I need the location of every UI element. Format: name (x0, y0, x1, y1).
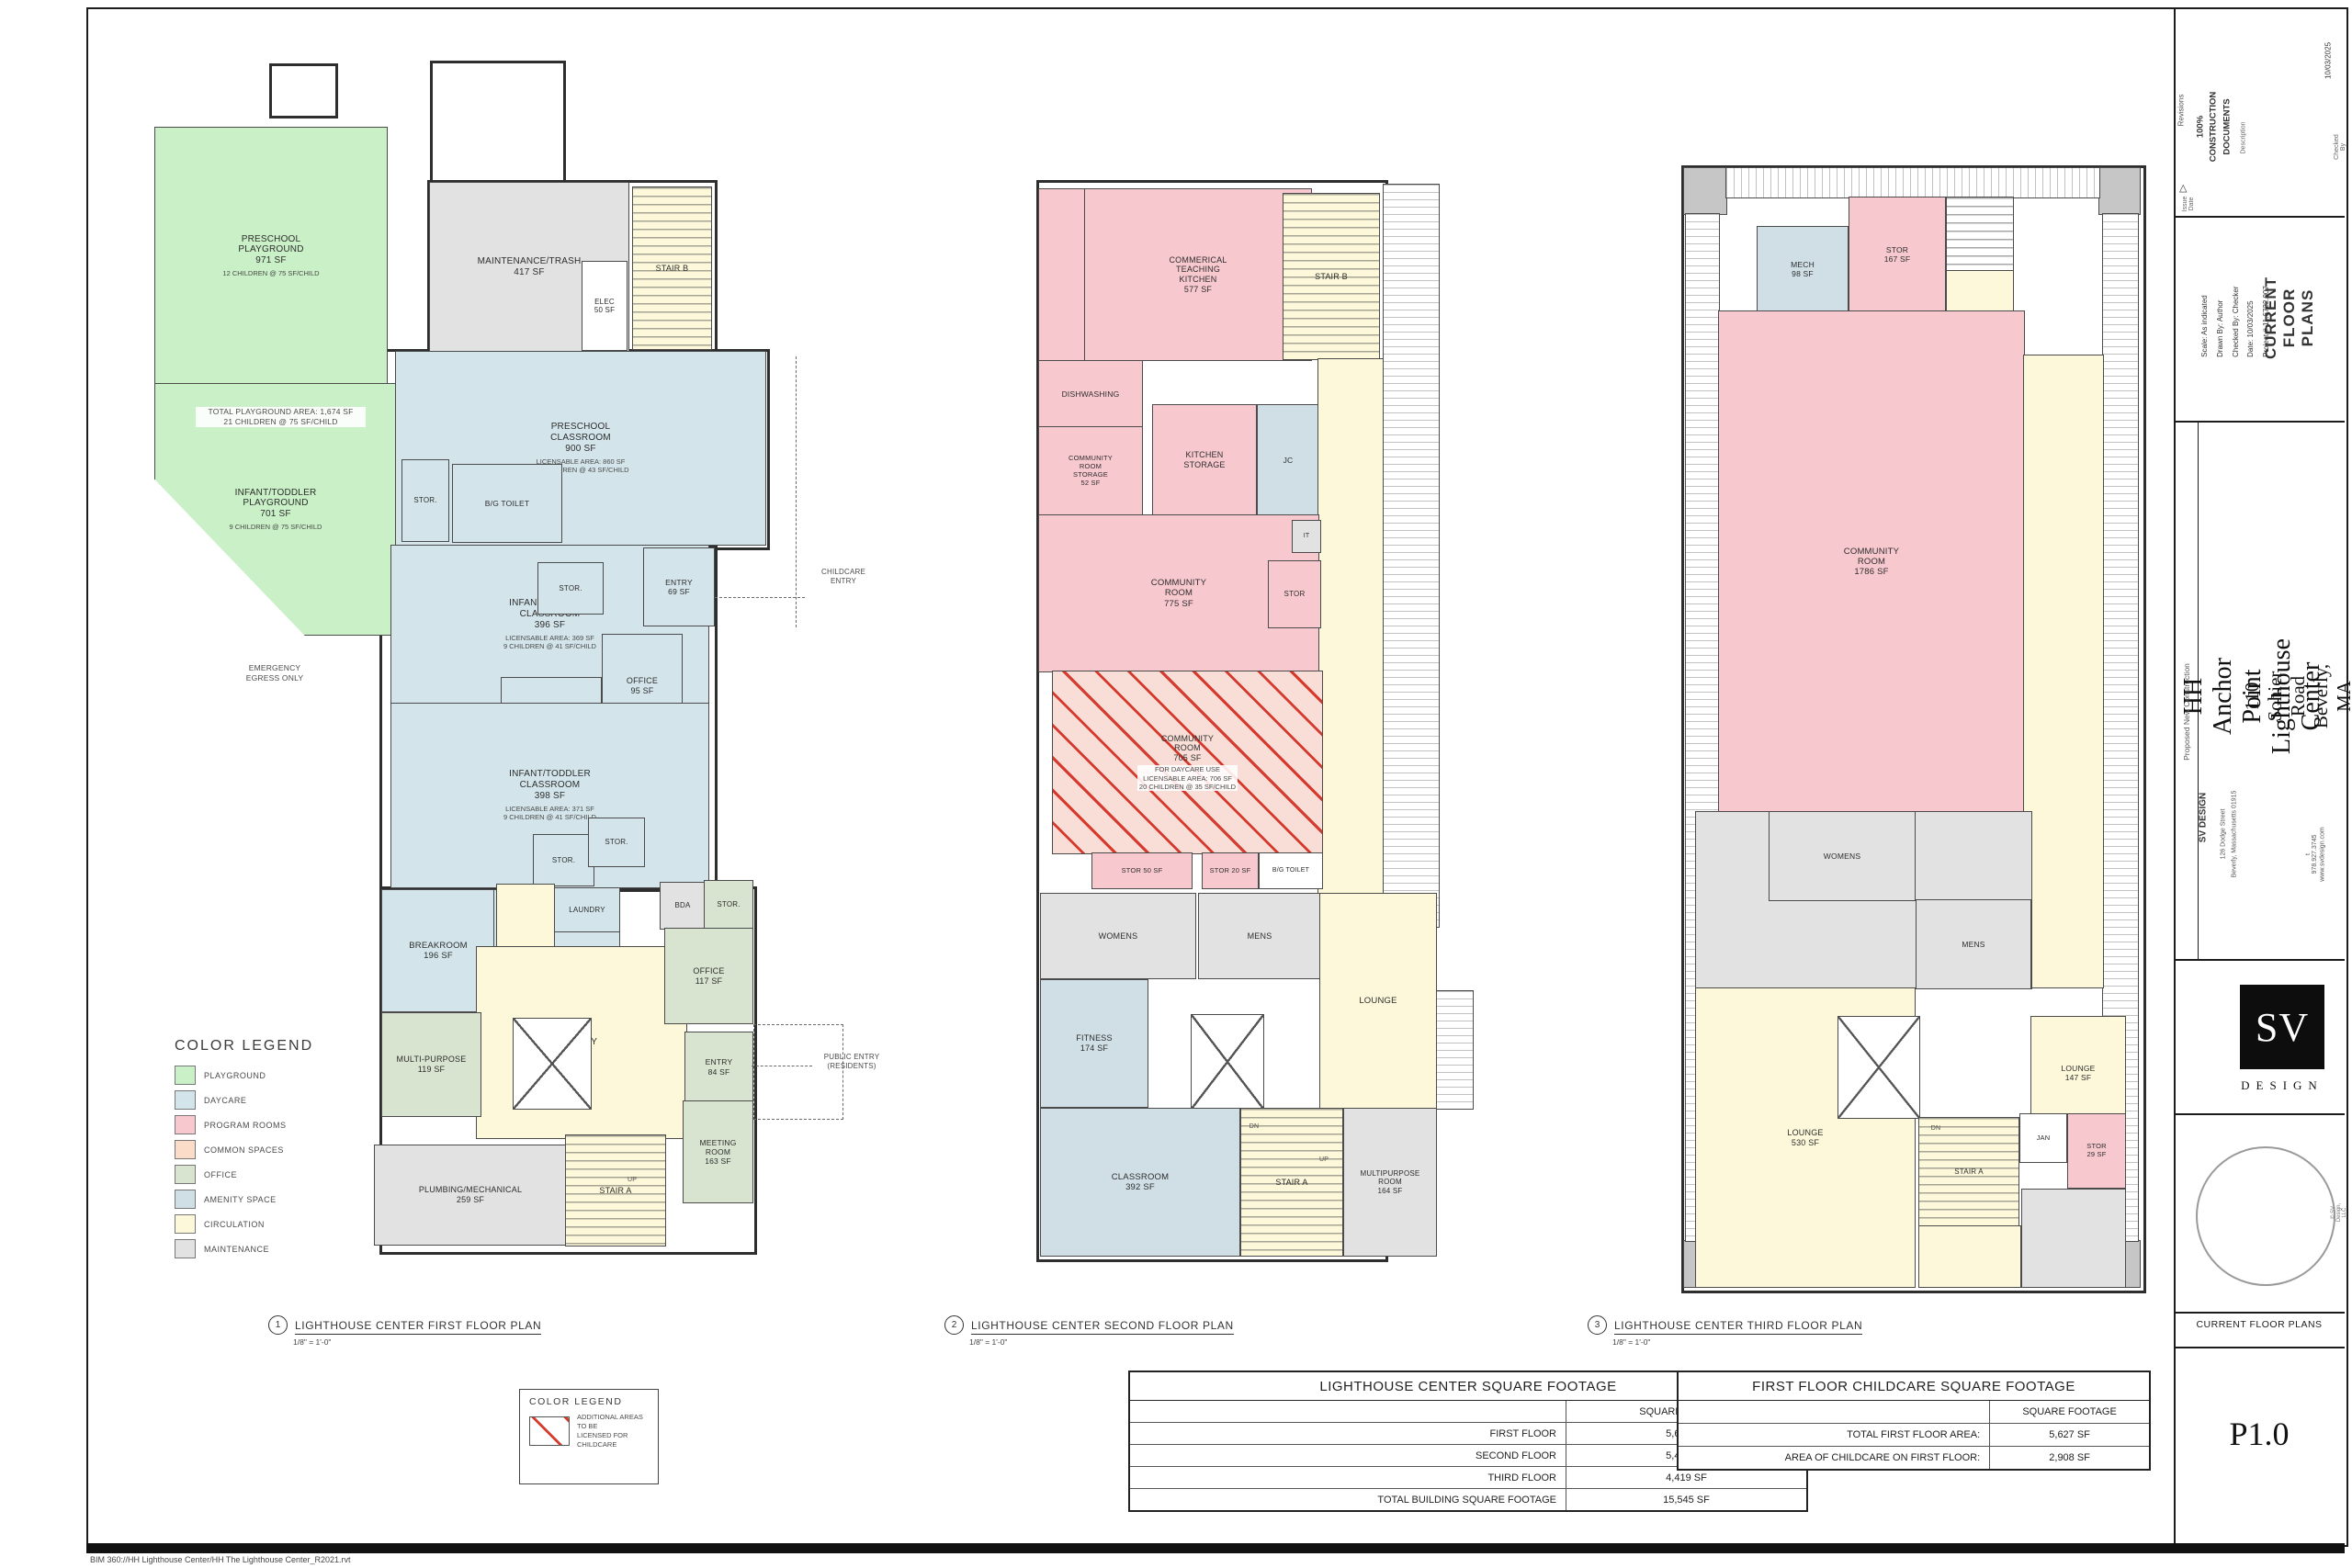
legend-swatch (175, 1190, 196, 1209)
room-label: FITNESS 174 SF (1076, 1033, 1112, 1053)
plan-annotation: DN (1244, 1122, 1264, 1131)
room-label: CLASSROOM 392 SF (1112, 1172, 1170, 1192)
room-stor: STOR. (588, 818, 645, 867)
legend-label: DAYCARE (204, 1096, 246, 1105)
room-label: STOR. (552, 856, 575, 864)
room-label: BDA (674, 901, 690, 909)
room-label: STOR. (559, 584, 582, 592)
room-label: IT (1304, 533, 1310, 540)
legend-label: COMMON SPACES (204, 1145, 284, 1155)
phase-label: 100% CONSTRUCTION DOCUMENTS (2195, 92, 2234, 163)
room-multipurpose-room: MULTIPURPOSE ROOM 164 SF (1343, 1108, 1437, 1257)
room-elec: ELEC 50 SF (582, 261, 628, 351)
legend-item: DAYCARE (175, 1090, 313, 1110)
room-label: DISHWASHING (1062, 389, 1120, 399)
copyright-note: © SV Design, LLC (2331, 1203, 2347, 1222)
drawing-sheet: PRESCHOOL PLAYGROUND 971 SF12 CHILDREN @… (0, 0, 2352, 1568)
room-community-room-705: COMMUNITY ROOM 705 SFFOR DAYCARE USE LIC… (1052, 671, 1323, 854)
room-stair-a: STAIR A (1918, 1117, 2019, 1227)
table-cell-label: AREA OF CHILDCARE ON FIRST FLOOR: (1679, 1447, 1990, 1469)
room-corridor (1317, 358, 1384, 900)
room-preschool-playground: PRESCHOOL PLAYGROUND 971 SF12 CHILDREN @… (154, 127, 388, 385)
plan-annotation: DN (1926, 1124, 1946, 1133)
room-roof-corner (1683, 167, 1727, 215)
room-label: MENS (1248, 931, 1272, 942)
room-sublabel: 12 CHILDREN @ 75 SF/CHILD (222, 269, 319, 277)
legend-label: AMENITY SPACE (204, 1195, 277, 1204)
table-cell-value: 2,908 SF (1990, 1447, 2149, 1469)
table-cell-value: 15,545 SF (1566, 1489, 1806, 1510)
firm-phone: t 978.927.3745 (2305, 834, 2318, 874)
room-label: COMMUNITY ROOM 775 SF (1151, 578, 1206, 609)
firm-address-1: 126 Dodge Street (2221, 809, 2227, 860)
bottom-border-bar (86, 1543, 2345, 1553)
room-label: STOR. (413, 496, 436, 504)
legend-label: OFFICE (204, 1170, 237, 1179)
plan-annotation: EMERGENCY EGRESS ONLY (235, 663, 314, 683)
room-label: COMMUNITY ROOM 1786 SF (1844, 547, 1899, 578)
logo-sv-text: SV (2256, 1004, 2309, 1051)
room-mech: MECH 98 SF (1757, 226, 1849, 312)
title-block (2174, 7, 2348, 1547)
room-label: STAIR A (599, 1186, 631, 1196)
revisions-label: Revisions (2177, 95, 2186, 127)
room-label: MENS (1962, 940, 1984, 949)
room-label: INFANT/TODDLER CLASSROOM 398 SF (509, 769, 591, 801)
table-cell-label (1130, 1401, 1566, 1422)
firm-address-2: Beverly, Massachusetts 01915 (2232, 791, 2238, 878)
room-stor-50: STOR 50 SF (1091, 852, 1193, 889)
table-row: TOTAL BUILDING SQUARE FOOTAGE15,545 SF (1130, 1489, 1806, 1510)
table-cell-label: THIRD FLOOR (1130, 1467, 1566, 1488)
plan-number: 2 (944, 1315, 964, 1335)
room-stair-b: STAIR B (632, 186, 712, 350)
room-laundry: LAUNDRY (554, 887, 620, 933)
room-community-room-storage: COMMUNITY ROOM STORAGE 52 SF (1038, 426, 1143, 516)
table-cell-label: FIRST FLOOR (1130, 1423, 1566, 1444)
sheet-title: CURRENT FLOOR PLANS (2174, 1319, 2345, 1330)
plan-annotation: UP (1314, 1156, 1334, 1164)
dashed-guide (715, 597, 805, 598)
room-label: WOMENS (1824, 852, 1860, 861)
legend-label: PROGRAM ROOMS (204, 1121, 287, 1130)
legend-item: OFFICE (175, 1165, 313, 1184)
revision-checked-by: Checked By (2334, 134, 2346, 160)
room-label: INFANT/TODDLER PLAYGROUND 701 SF (235, 488, 317, 520)
room-community-room-1786: COMMUNITY ROOM 1786 SF (1718, 310, 2025, 813)
tb-divider (2174, 1347, 2345, 1348)
room-kitchen-prep (1038, 188, 1088, 361)
room-roof-corner (2098, 167, 2141, 215)
room-it-room: IT (1292, 520, 1321, 553)
room-bg-toilet: B/G TOILET (1259, 852, 1323, 889)
room-elevator (1837, 1016, 1920, 1119)
room-label: STOR (1284, 590, 1306, 598)
revision-date: 10/03/2025 (2324, 42, 2333, 79)
room-stor-20: STOR 20 SF (1202, 852, 1259, 889)
table-row: AREA OF CHILDCARE ON FIRST FLOOR:2,908 S… (1679, 1447, 2149, 1469)
room-womens: WOMENS (1040, 893, 1196, 979)
room-label: MAINTENANCE/TRASH 417 SF (478, 256, 582, 278)
room-label: B/G TOILET (485, 499, 529, 508)
table-cell-value: 5,627 SF (1990, 1424, 2149, 1446)
plan-scale: 1/8" = 1'-0" (293, 1337, 541, 1347)
room-label: PLUMBING/MECHANICAL 259 SF (419, 1185, 522, 1204)
room-label: COMMUNITY ROOM 705 SF (1161, 734, 1214, 763)
hatch-swatch (529, 1416, 570, 1446)
room-label: LOUNGE (1359, 996, 1396, 1006)
room-label: OFFICE 95 SF (627, 676, 658, 695)
room-label: STOR 29 SF (2086, 1143, 2107, 1159)
room-lounge-alcove (2021, 1189, 2126, 1288)
room-commercial-teaching-kitchen: COMMERICAL TEACHING KITCHEN 577 SF (1084, 188, 1312, 361)
room-entry-69: ENTRY 69 SF (643, 547, 715, 626)
sheet-fields: Scale: As indicated Drawn By: Author Che… (2198, 286, 2275, 357)
room-label: STOR 20 SF (1210, 867, 1251, 875)
legend-swatch (175, 1165, 196, 1184)
room-jan: JAN (2019, 1113, 2067, 1163)
dashed-guide (753, 1024, 843, 1120)
room-label: PRESCHOOL PLAYGROUND 971 SF (238, 234, 303, 266)
room-label: B/G TOILET (1272, 867, 1309, 874)
firm-name: SV DESIGN (2199, 793, 2209, 842)
legend-note: ADDITIONAL AREAS TO BE LICENSED FOR CHIL… (577, 1413, 649, 1450)
room-label: STOR 167 SF (1884, 245, 1911, 264)
room-label: COMMUNITY ROOM STORAGE 52 SF (1069, 455, 1113, 487)
legend-item: CIRCULATION (175, 1214, 313, 1234)
room-fitness: FITNESS 174 SF (1040, 979, 1148, 1108)
room-sublabel: LICENSABLE AREA: 369 SF 9 CHILDREN @ 41 … (503, 634, 596, 651)
legend-item: MAINTENANCE (175, 1239, 313, 1258)
room-sublabel: 9 CHILDREN @ 75 SF/CHILD (230, 523, 322, 531)
table-cell-label: TOTAL FIRST FLOOR AREA: (1679, 1424, 1990, 1446)
room-label: BREAKROOM 196 SF (409, 941, 468, 961)
room-label: MULTIPURPOSE ROOM 164 SF (1361, 1169, 1420, 1195)
room-label: COMMERICAL TEACHING KITCHEN 577 SF (1169, 255, 1227, 294)
room-stor: STOR. (537, 562, 604, 615)
room-label: MEETING ROOM 163 SF (699, 1138, 736, 1166)
room-corridor (496, 884, 555, 948)
legend-swatch (175, 1214, 196, 1234)
plan-annotation: CHILDCARE ENTRY (807, 568, 880, 587)
plan-title-third-floor: 3LIGHTHOUSE CENTER THIRD FLOOR PLAN1/8" … (1588, 1315, 1862, 1347)
room-stor-29: STOR 29 SF (2067, 1113, 2126, 1189)
room-label: STAIR A (1275, 1178, 1307, 1188)
room-stor-167: STOR 167 SF (1849, 197, 1946, 312)
project-address: 110 Sohier Road Beverly, MA 01915 (2241, 664, 2352, 728)
sv-design-logo: SV (2240, 985, 2324, 1069)
square-footage-table-2: FIRST FLOOR CHILDCARE SQUARE FOOTAGESQUA… (1677, 1371, 2151, 1471)
room-corridor (1918, 1225, 2021, 1288)
room-label: STOR. (605, 838, 628, 846)
room-deck (1435, 990, 1474, 1110)
room-stair-treads (1946, 197, 2014, 272)
room-label: LAUNDRY (569, 906, 605, 914)
room-lounge: LOUNGE (1319, 893, 1437, 1110)
room-roof-deck (1725, 167, 2100, 198)
legend-title: COLOR LEGEND (529, 1396, 649, 1407)
firm-website: www.svdesign.com (2320, 827, 2326, 882)
tb-divider (2174, 216, 2345, 218)
building-outline (269, 63, 338, 118)
room-stor: STOR (1268, 560, 1321, 628)
legend-item: COMMON SPACES (175, 1140, 313, 1159)
table-cell-label: SECOND FLOOR (1130, 1445, 1566, 1466)
room-elevator (1191, 1014, 1264, 1110)
room-label: STAIR B (656, 264, 689, 274)
room-stor: STOR. (704, 880, 753, 930)
table-row: TOTAL FIRST FLOOR AREA:5,627 SF (1679, 1424, 2149, 1447)
room-bda: BDA (660, 882, 706, 930)
plan-annotation: TOTAL PLAYGROUND AREA: 1,674 SF 21 CHILD… (196, 407, 366, 427)
plan-number: 1 (268, 1315, 288, 1335)
stamp-circle (2196, 1146, 2335, 1286)
tb-divider (2174, 1113, 2345, 1115)
room-plumbing-mechanical: PLUMBING/MECHANICAL 259 SF (374, 1145, 567, 1246)
room-label: JC (1283, 456, 1294, 465)
room-label: STAIR A (1954, 1168, 1983, 1176)
room-label: JAN (2037, 1134, 2051, 1143)
legend-swatch (175, 1239, 196, 1258)
logo-design-text: DESIGN (2240, 1078, 2324, 1093)
room-sublabel: LICENSABLE AREA: 371 SF 9 CHILDREN @ 41 … (503, 805, 596, 822)
legend-label: PLAYGROUND (204, 1071, 266, 1080)
table-row: SQUARE FOOTAGE (1679, 1401, 2149, 1424)
room-label: STOR 50 SF (1122, 867, 1163, 875)
room-sublabel: FOR DAYCARE USE LICENSABLE AREA: 706 SF … (1137, 765, 1238, 791)
proposed-label: Proposed New Construction (2182, 663, 2191, 761)
legend-swatch (175, 1066, 196, 1085)
childcare-color-legend: COLOR LEGENDADDITIONAL AREAS TO BE LICEN… (519, 1389, 659, 1484)
room-label: WOMENS (1099, 931, 1138, 942)
room-label: LOUNGE 530 SF (1787, 1128, 1823, 1147)
room-stair-b: STAIR B (1283, 193, 1380, 360)
plan-annotation: UP (621, 1176, 643, 1184)
room-corridor (2023, 355, 2104, 988)
room-entry-84: ENTRY 84 SF (684, 1032, 753, 1102)
room-elevator (513, 1018, 592, 1110)
room-label: STOR. (717, 900, 740, 908)
room-dishwashing: DISHWASHING (1038, 360, 1143, 428)
sheet-number: P1.0 (2174, 1415, 2345, 1453)
room-preschool-classroom: PRESCHOOL CLASSROOM 900 SFLICENSABLE ARE… (395, 351, 766, 546)
room-office-117: OFFICE 117 SF (664, 928, 753, 1024)
plan-title-text: LIGHTHOUSE CENTER SECOND FLOOR PLAN (971, 1319, 1234, 1335)
room-label: MECH 98 SF (1791, 260, 1815, 278)
table-title: FIRST FLOOR CHILDCARE SQUARE FOOTAGE (1679, 1372, 2149, 1401)
legend-item: PLAYGROUND (175, 1066, 313, 1085)
legend-label: CIRCULATION (204, 1220, 265, 1229)
room-label: ELEC 50 SF (594, 298, 615, 315)
tb-divider (2174, 421, 2345, 423)
plan-number: 3 (1588, 1315, 1607, 1335)
revisions-description: Description (2241, 121, 2247, 153)
room-deck (1383, 184, 1440, 928)
table-cell-label: TOTAL BUILDING SQUARE FOOTAGE (1130, 1489, 1566, 1510)
room-kitchen-storage: KITCHEN STORAGE (1152, 404, 1257, 516)
table-cell-value: SQUARE FOOTAGE (1990, 1401, 2149, 1423)
room-label: ENTRY 69 SF (665, 578, 693, 596)
room-label: MULTI-PURPOSE 119 SF (397, 1055, 467, 1074)
plan-title-second-floor: 2LIGHTHOUSE CENTER SECOND FLOOR PLAN1/8"… (944, 1315, 1234, 1347)
building-outline (430, 61, 566, 187)
room-classroom-392: CLASSROOM 392 SF (1040, 1108, 1240, 1257)
room-womens: WOMENS (1769, 811, 1916, 901)
room-label: PRESCHOOL CLASSROOM 900 SF (550, 422, 611, 454)
file-path: BIM 360://HH Lighthouse Center/HH The Li… (90, 1555, 351, 1564)
legend-title: COLOR LEGEND (175, 1038, 313, 1055)
tb-divider (2174, 1312, 2345, 1314)
revision-triangle-icon: △ (2179, 182, 2187, 194)
legend-item: AMENITY SPACE (175, 1190, 313, 1209)
legend-swatch (175, 1140, 196, 1159)
room-meeting-room: MEETING ROOM 163 SF (683, 1100, 753, 1203)
plan-title-text: LIGHTHOUSE CENTER FIRST FLOOR PLAN (295, 1319, 541, 1335)
room-jc: JC (1257, 404, 1319, 516)
room-label: STAIR B (1315, 272, 1348, 282)
room-multi-purpose: MULTI-PURPOSE 119 SF (381, 1012, 481, 1117)
plan-scale: 1/8" = 1'-0" (969, 1337, 1234, 1347)
room-label: OFFICE 117 SF (693, 966, 724, 986)
tb-divider (2174, 959, 2345, 961)
table-cell-label (1679, 1401, 1990, 1423)
dashed-guide (752, 1066, 812, 1066)
room-label: KITCHEN STORAGE (1183, 450, 1225, 469)
legend-swatch (175, 1115, 196, 1134)
room-mens: MENS (1198, 893, 1321, 979)
room-mens: MENS (1916, 899, 2031, 989)
plan-annotation: PUBLIC ENTRY (RESIDENTS) (810, 1053, 893, 1072)
room-stor: STOR. (533, 834, 594, 886)
plan-scale: 1/8" = 1'-0" (1612, 1337, 1862, 1347)
room-label: LOUNGE 147 SF (2061, 1064, 2095, 1082)
plan-title-text: LIGHTHOUSE CENTER THIRD FLOOR PLAN (1614, 1319, 1862, 1335)
dashed-guide (796, 356, 797, 627)
room-stair-a: STAIR A (565, 1134, 666, 1247)
legend-label: MAINTENANCE (204, 1245, 269, 1254)
room-stor: STOR. (401, 459, 449, 542)
legend-swatch (175, 1090, 196, 1110)
room-bg-toilet: B/G TOILET (452, 464, 562, 543)
revisions-issue-date: Issue Date (2182, 197, 2195, 212)
plan-title-first-floor: 1LIGHTHOUSE CENTER FIRST FLOOR PLAN1/8" … (268, 1315, 541, 1347)
legend-item: PROGRAM ROOMS (175, 1115, 313, 1134)
room-label: ENTRY 84 SF (706, 1057, 733, 1076)
color-legend: COLOR LEGENDPLAYGROUNDDAYCAREPROGRAM ROO… (175, 1038, 313, 1264)
